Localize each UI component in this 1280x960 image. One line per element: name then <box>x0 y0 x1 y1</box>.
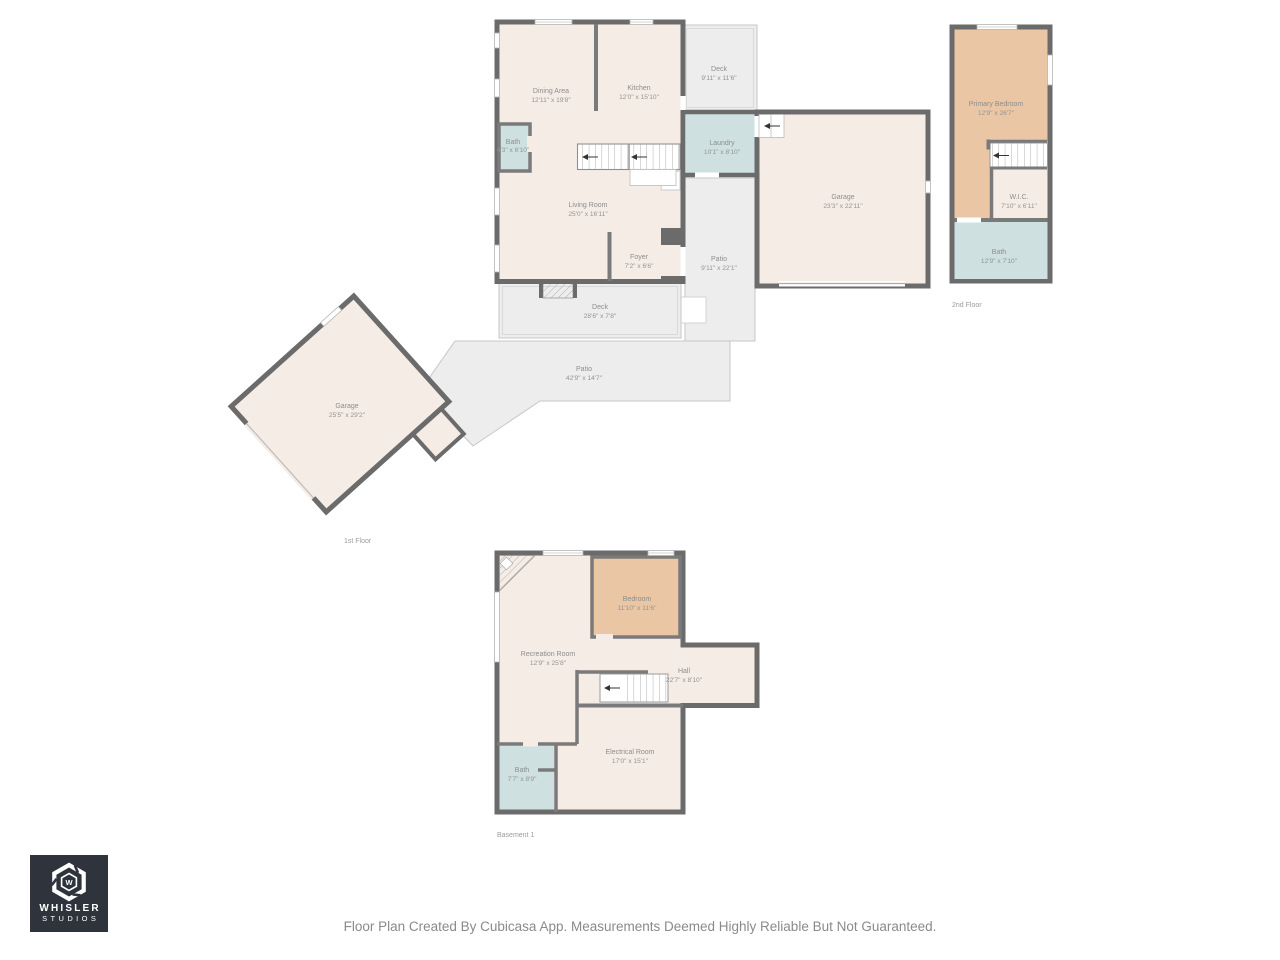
staircase-second-floor <box>987 140 1048 169</box>
svg-text:Dining Area: Dining Area <box>533 88 569 95</box>
svg-text:W: W <box>65 878 73 887</box>
svg-text:9'11" x 22'1": 9'11" x 22'1" <box>701 265 737 272</box>
svg-text:Foyer: Foyer <box>630 254 649 261</box>
footer-caption: Floor Plan Created By Cubicasa App. Meas… <box>0 919 1280 934</box>
svg-text:Garage: Garage <box>831 194 854 201</box>
svg-text:Bath: Bath <box>515 767 530 774</box>
svg-text:Garage: Garage <box>335 403 358 410</box>
svg-text:12'9" x 25'8": 12'9" x 25'8" <box>530 660 567 667</box>
svg-text:23'3" x 22'11": 23'3" x 22'11" <box>823 203 863 210</box>
svg-text:12'0" x 15'10": 12'0" x 15'10" <box>619 94 659 101</box>
logo-name-text: WHISLER <box>39 903 101 914</box>
svg-text:Laundry: Laundry <box>709 140 735 147</box>
floor-label-second: 2nd Floor <box>952 302 982 309</box>
window-symbol <box>926 181 931 193</box>
staircase-basement <box>600 674 668 702</box>
svg-text:42'9" x 14'7": 42'9" x 14'7" <box>566 375 603 382</box>
svg-text:Patio: Patio <box>576 366 592 373</box>
floor-label-first: 1st Floor <box>344 538 372 545</box>
first-floor-plan: Dining Area 12'11" x 19'8" Kitchen 12'0"… <box>227 20 930 546</box>
second-floor-plan: Primary Bedroom 12'9" x 26'7" W.I.C. 7'1… <box>952 25 1053 310</box>
wall-opening <box>681 247 686 276</box>
svg-text:Bath: Bath <box>992 249 1007 256</box>
svg-text:Living Room: Living Room <box>569 202 608 209</box>
svg-text:7'2" x 6'6": 7'2" x 6'6" <box>625 263 654 270</box>
svg-text:Bath: Bath <box>506 139 521 146</box>
svg-text:Hall: Hall <box>678 668 691 675</box>
svg-text:25'0" x 16'11": 25'0" x 16'11" <box>568 211 608 218</box>
svg-text:28'6" x 7'8": 28'6" x 7'8" <box>584 313 617 320</box>
svg-text:25'5" x 29'2": 25'5" x 29'2" <box>329 412 366 419</box>
svg-text:W.I.C.: W.I.C. <box>1009 194 1028 201</box>
floor-plan-drawing: Dining Area 12'11" x 19'8" Kitchen 12'0"… <box>0 0 1280 960</box>
svg-text:12'9" x 26'7": 12'9" x 26'7" <box>978 110 1015 117</box>
svg-text:Deck: Deck <box>711 66 727 73</box>
room-patio-rear <box>420 341 730 446</box>
svg-text:Recreation Room: Recreation Room <box>521 651 576 658</box>
svg-text:4'3" x 6'10": 4'3" x 6'10" <box>497 147 530 154</box>
wall-opening <box>695 173 719 178</box>
svg-text:12'9" x 7'10": 12'9" x 7'10" <box>981 258 1018 265</box>
wall-opening <box>957 218 981 223</box>
basement-plan: Recreation Room 12'9" x 25'8" Bedroom 11… <box>495 551 758 840</box>
wall-opening <box>523 742 538 747</box>
svg-text:17'0" x 15'1": 17'0" x 15'1" <box>612 758 649 765</box>
svg-text:10'1" x 8'10": 10'1" x 8'10" <box>704 149 741 156</box>
whisler-logo-icon: W <box>47 861 91 903</box>
svg-text:Electrical Room: Electrical Room <box>605 749 654 756</box>
svg-text:22'7" x 8'10": 22'7" x 8'10" <box>666 677 703 684</box>
svg-text:7'7" x 8'9": 7'7" x 8'9" <box>508 776 537 783</box>
deck-steps <box>543 283 573 298</box>
wall-opening <box>681 96 686 110</box>
svg-text:11'10" x 11'6": 11'10" x 11'6" <box>618 605 658 612</box>
patio-notch <box>681 297 706 323</box>
floor-label-basement: Basement 1 <box>497 832 534 839</box>
svg-text:Patio: Patio <box>711 256 727 263</box>
svg-text:Bedroom: Bedroom <box>623 596 652 603</box>
svg-text:12'11" x 19'8": 12'11" x 19'8" <box>531 97 571 104</box>
svg-text:Primary Bedroom: Primary Bedroom <box>969 101 1024 108</box>
svg-text:Deck: Deck <box>592 304 608 311</box>
svg-text:9'11" x 11'6": 9'11" x 11'6" <box>701 75 737 82</box>
room-deck-lower <box>499 283 681 338</box>
svg-text:Kitchen: Kitchen <box>627 85 650 92</box>
wall-opening <box>596 634 613 640</box>
svg-text:7'10" x 6'11": 7'10" x 6'11" <box>1001 203 1037 210</box>
